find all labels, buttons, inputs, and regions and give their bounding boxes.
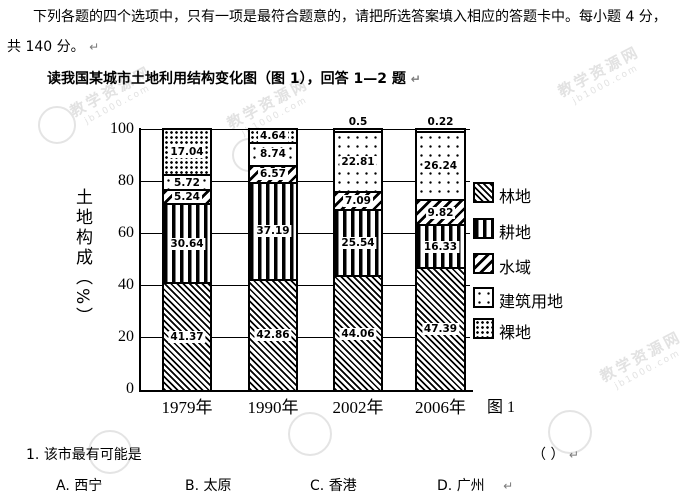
value-label: 7.09 <box>343 195 373 207</box>
question-text: 该市最有可能是 <box>44 447 142 463</box>
value-label: 22.81 <box>339 156 376 168</box>
value-label: 44.06 <box>339 328 376 340</box>
segment-建筑用地-2006年: 26.24 <box>417 131 464 199</box>
segment-裸地-2006年 <box>417 130 464 131</box>
option-c-label: C. <box>310 478 324 494</box>
value-label: 5.72 <box>172 177 202 189</box>
legend-swatch-林地 <box>473 182 494 203</box>
segment-耕地-1990年: 37.19 <box>250 182 296 279</box>
y-axis-title: 土地构成（%） <box>70 188 95 327</box>
legend-label-林地: 林地 <box>499 183 531 207</box>
segment-林地-2006年: 47.39 <box>417 267 464 390</box>
segment-水域-1979年: 5.24 <box>164 189 210 203</box>
bar-1979年: 41.3730.645.245.7217.04 <box>162 128 212 392</box>
legend-label-建筑用地: 建筑用地 <box>499 288 563 312</box>
option-b-label: B. <box>185 478 199 494</box>
paragraph-mark: ↵ <box>569 448 579 462</box>
option-d: D. 广州 ↵ <box>437 477 513 496</box>
y-tick-label-0: 0 <box>90 380 134 398</box>
value-label: 4.64 <box>258 130 288 142</box>
segment-裸地-1990年: 4.64 <box>250 130 296 142</box>
segment-林地-1979年: 41.37 <box>164 282 210 390</box>
value-label: 42.86 <box>254 329 291 341</box>
legend-swatch-耕地 <box>473 218 494 239</box>
segment-耕地-2002年: 25.54 <box>335 209 381 275</box>
value-label: 47.39 <box>422 323 459 335</box>
x-tick-label-2006年: 2006年 <box>403 393 479 418</box>
legend-label-裸地: 裸地 <box>499 319 531 343</box>
question-1: 1. 该市最有可能是 <box>26 446 142 465</box>
answer-blank: （ ） ↵ <box>532 446 579 465</box>
segment-耕地-2006年: 16.33 <box>417 224 464 266</box>
legend-label-水域: 水域 <box>499 254 531 278</box>
segment-水域-2006年: 9.82 <box>417 199 464 225</box>
bar-2002年: 44.0625.547.0922.81 <box>333 128 383 392</box>
segment-建筑用地-1990年: 8.74 <box>250 142 296 165</box>
value-label: 9.82 <box>426 207 456 219</box>
y-tick-label-40: 40 <box>90 276 134 294</box>
x-tick-label-2002年: 2002年 <box>320 393 396 418</box>
x-tick-label-1979年: 1979年 <box>149 393 225 418</box>
value-label: 8.74 <box>258 148 288 160</box>
y-tick-label-20: 20 <box>90 328 134 346</box>
y-tick-label-60: 60 <box>90 224 134 242</box>
segment-裸地-2002年 <box>335 130 381 131</box>
segment-裸地-1979年: 17.04 <box>164 130 210 174</box>
segment-水域-1990年: 6.57 <box>250 165 296 182</box>
segment-建筑用地-1979年: 5.72 <box>164 174 210 189</box>
x-tick-label-1990年: 1990年 <box>235 393 311 418</box>
segment-林地-2002年: 44.06 <box>335 275 381 390</box>
legend-swatch-建筑用地 <box>473 287 494 308</box>
value-label: 26.24 <box>422 160 459 172</box>
segment-耕地-1979年: 30.64 <box>164 203 210 283</box>
y-tick-label-80: 80 <box>90 172 134 190</box>
option-a: A. 西宁 <box>56 477 102 496</box>
option-d-text: 广州 <box>457 478 485 494</box>
value-label-outside: 0.5 <box>325 116 391 128</box>
bar-1990年: 42.8637.196.578.744.64 <box>248 128 298 392</box>
bar-2006年: 47.3916.339.8226.24 <box>415 128 466 392</box>
value-label: 6.57 <box>258 168 288 180</box>
figure-caption: 图 1 <box>487 393 515 417</box>
document-page: 教学资源网 jb1000.com 教学资源网 jb1000.com 教学资源网 … <box>0 0 681 503</box>
value-label: 30.64 <box>168 238 205 250</box>
y-axis-line <box>139 128 141 392</box>
option-b-text: 太原 <box>204 478 232 494</box>
y-tick-label-100: 100 <box>90 120 134 138</box>
paragraph-mark: ↵ <box>503 479 513 493</box>
legend-label-耕地: 耕地 <box>499 219 531 243</box>
legend-swatch-裸地 <box>473 318 494 339</box>
value-label: 16.33 <box>422 241 459 253</box>
question-number: 1. <box>26 447 39 463</box>
value-label: 37.19 <box>254 225 291 237</box>
option-c-text: 香港 <box>329 478 357 494</box>
value-label: 25.54 <box>339 237 376 249</box>
option-b: B. 太原 <box>185 477 232 496</box>
value-label: 17.04 <box>168 146 205 158</box>
option-c: C. 香港 <box>310 477 357 496</box>
segment-林地-1990年: 42.86 <box>250 279 296 390</box>
option-a-text: 西宁 <box>74 478 102 494</box>
option-d-label: D. <box>437 478 452 494</box>
value-label: 41.37 <box>168 331 205 343</box>
option-a-label: A. <box>56 478 70 494</box>
segment-水域-2002年: 7.09 <box>335 191 381 209</box>
value-label-outside: 0.22 <box>407 116 474 128</box>
land-use-stacked-bar-chart: 土地构成（%） 图 1 02040608010041.3730.645.245.… <box>0 0 681 503</box>
answer-blank-parens: （ ） <box>532 447 564 463</box>
segment-建筑用地-2002年: 22.81 <box>335 131 381 190</box>
value-label: 5.24 <box>172 191 202 203</box>
legend-swatch-水域 <box>473 253 494 274</box>
